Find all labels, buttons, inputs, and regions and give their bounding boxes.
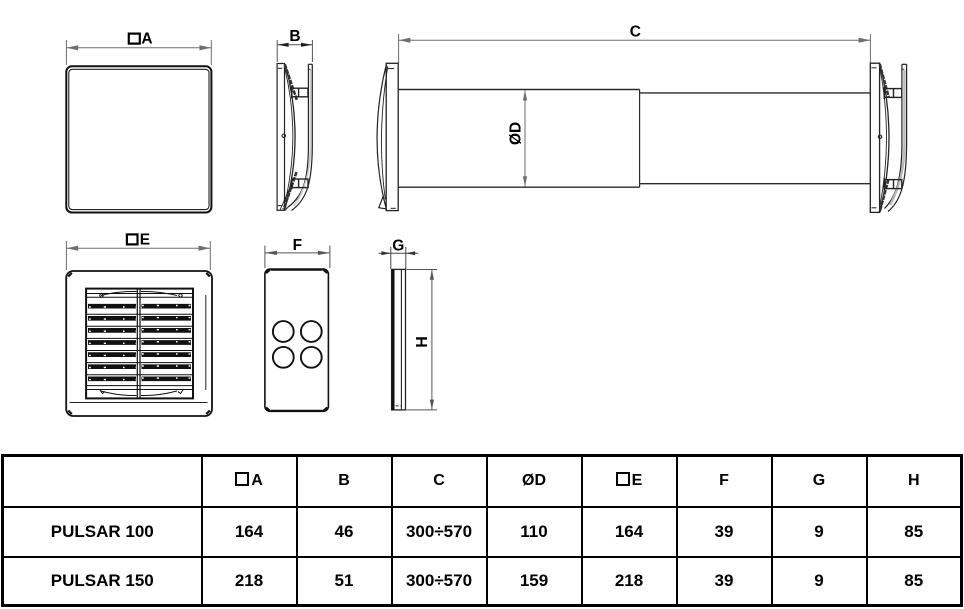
svg-text:H: H xyxy=(414,336,431,348)
svg-text:B: B xyxy=(289,28,300,45)
svg-text:G: G xyxy=(392,237,404,254)
svg-text:E: E xyxy=(140,231,150,248)
svg-text:F: F xyxy=(293,237,302,254)
svg-text:C: C xyxy=(630,23,641,40)
svg-text:ØD: ØD xyxy=(508,122,525,145)
svg-text:A: A xyxy=(141,31,152,48)
